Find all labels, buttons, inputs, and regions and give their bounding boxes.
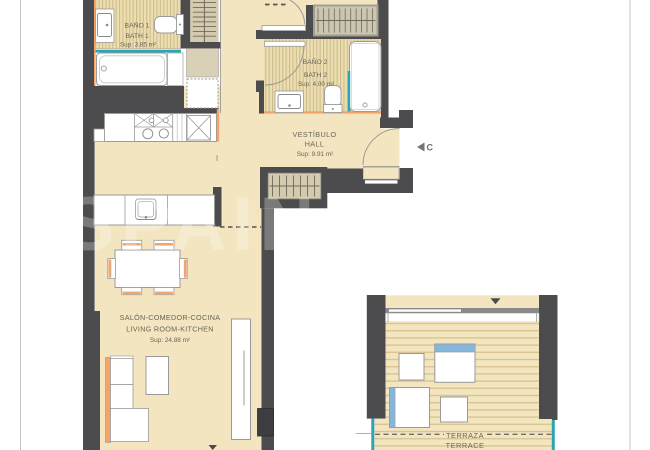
svg-text:BAÑO 1: BAÑO 1: [125, 21, 150, 30]
svg-text:HALL: HALL: [305, 140, 325, 149]
svg-text:TERRACE: TERRACE: [446, 441, 485, 450]
svg-text:LIVING ROOM-KITCHEN: LIVING ROOM-KITCHEN: [126, 325, 214, 334]
svg-text:BATH 2: BATH 2: [304, 72, 328, 79]
svg-text:Sup: 4.00 m²: Sup: 4.00 m²: [298, 81, 334, 88]
svg-text:BAÑO 2: BAÑO 2: [303, 57, 328, 66]
svg-text:SALÓN-COMEDOR-COCINA: SALÓN-COMEDOR-COCINA: [120, 313, 221, 322]
svg-text:C: C: [427, 143, 434, 153]
svg-text:VESTÍBULO: VESTÍBULO: [293, 130, 337, 139]
svg-text:SPAIN: SPAIN: [64, 182, 321, 267]
svg-text:Sup: 24.88 m²: Sup: 24.88 m²: [150, 337, 190, 344]
svg-text:BATH 1: BATH 1: [125, 33, 149, 40]
svg-text:Sup: 9.91 m²: Sup: 9.91 m²: [297, 151, 334, 158]
svg-text:Sup: 3.85 m²: Sup: 3.85 m²: [120, 42, 156, 49]
svg-text:TERRAZA: TERRAZA: [446, 431, 484, 440]
